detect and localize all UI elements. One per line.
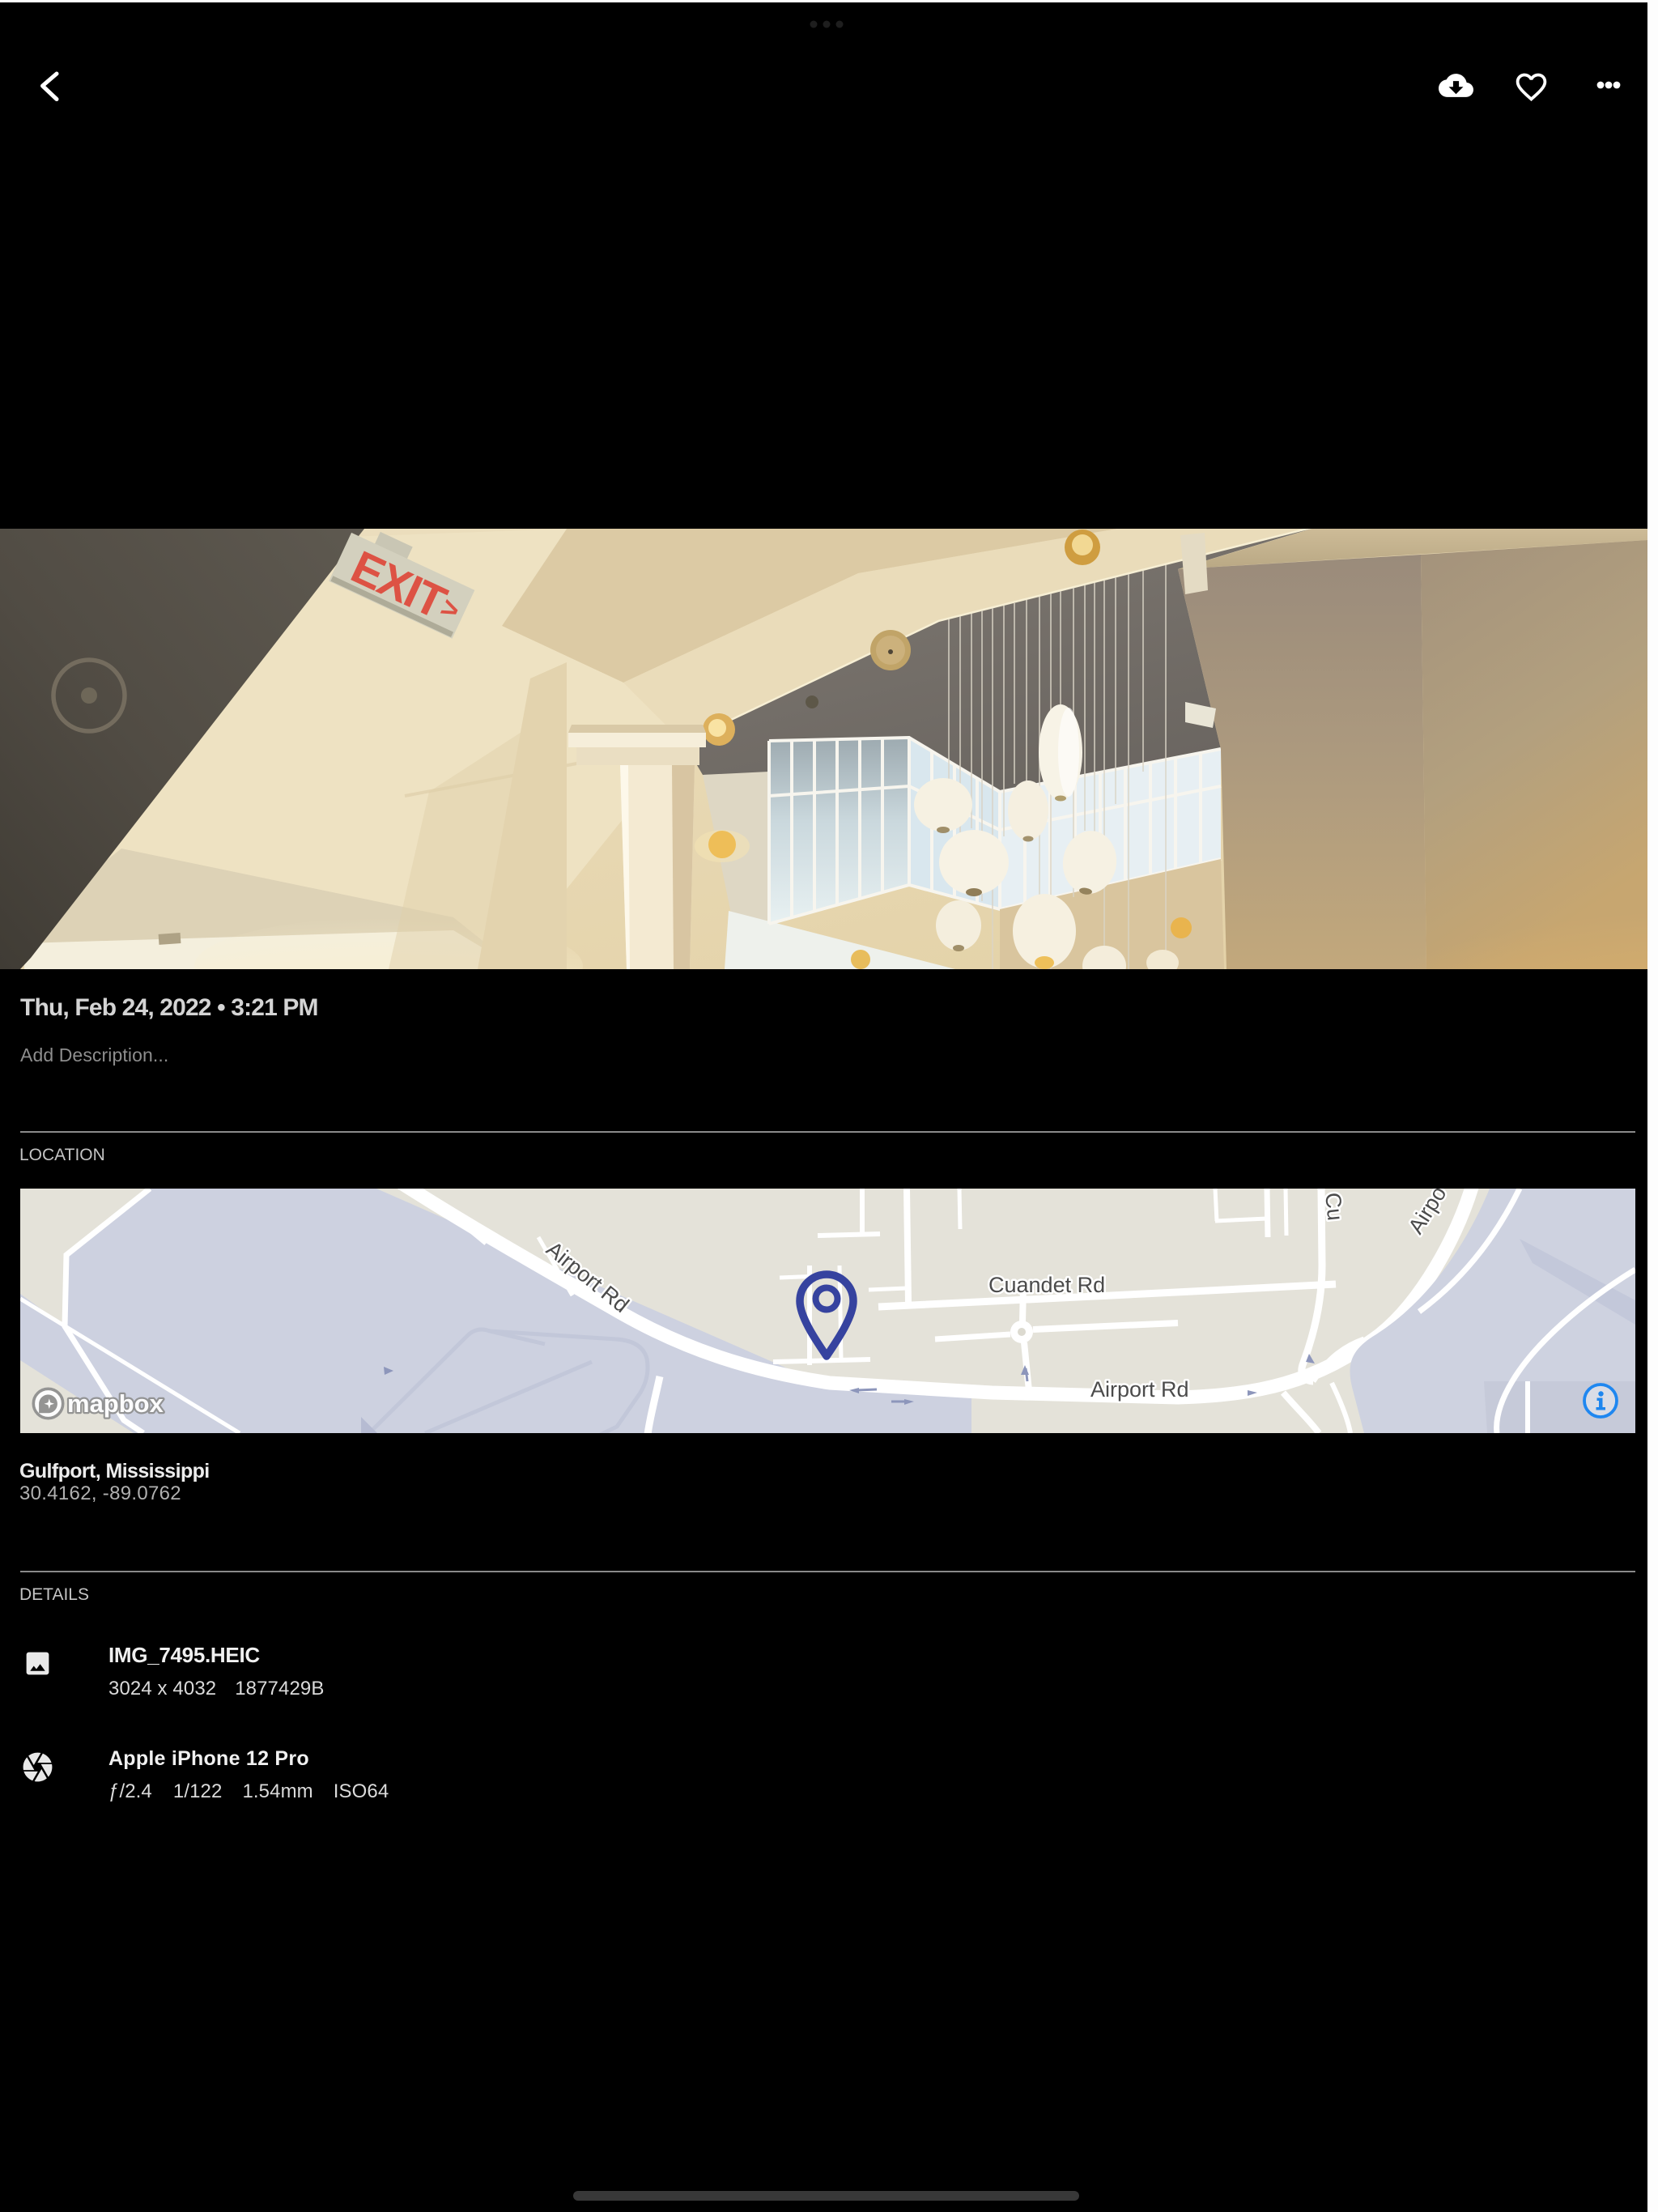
svg-text:Cu: Cu <box>1320 1191 1347 1221</box>
svg-text:Cuandet Rd: Cuandet Rd <box>988 1273 1105 1297</box>
svg-text:mapbox: mapbox <box>67 1389 164 1418</box>
svg-text:Airport Rd: Airport Rd <box>1090 1377 1189 1402</box>
